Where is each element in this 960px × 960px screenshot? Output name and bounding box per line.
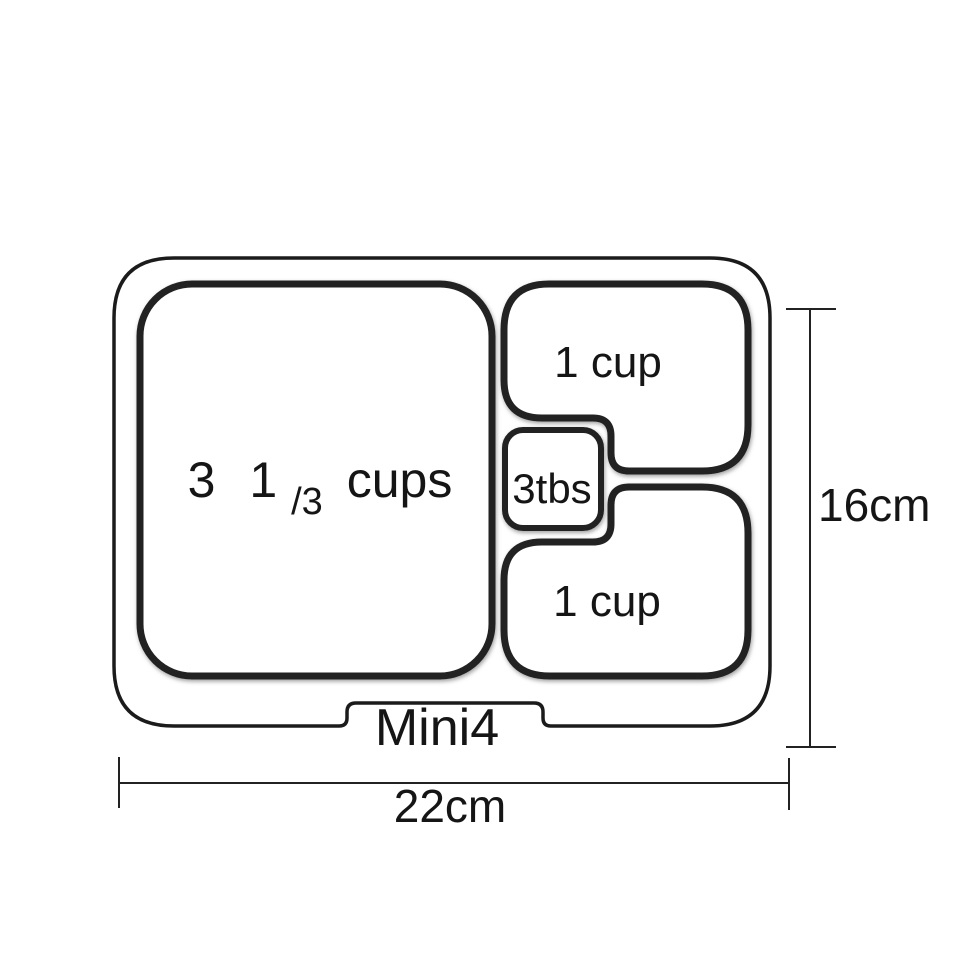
large-label-whole: 3 [188,452,216,508]
large-label-unit: cups [347,452,453,508]
bottom-right-compartment-label: 1 cup [553,577,661,626]
bento-tray-diagram: 3 1 /3 cups 1 cup 3tbs 1 cup Mini4 16cm … [0,0,960,960]
model-label: Mini4 [375,699,499,757]
diagram-canvas: 3 1 /3 cups 1 cup 3tbs 1 cup Mini4 16cm … [0,0,960,960]
width-dimension-label: 22cm [394,780,506,832]
width-dimension: 22cm [119,757,789,832]
small-compartment-label: 3tbs [512,465,591,512]
large-label-fraction-numerator: 1 [249,452,277,508]
large-label-fraction-denominator: /3 [291,481,323,523]
top-right-compartment-label: 1 cup [554,338,662,387]
height-dimension-label: 16cm [818,479,930,531]
height-dimension: 16cm [786,309,930,747]
